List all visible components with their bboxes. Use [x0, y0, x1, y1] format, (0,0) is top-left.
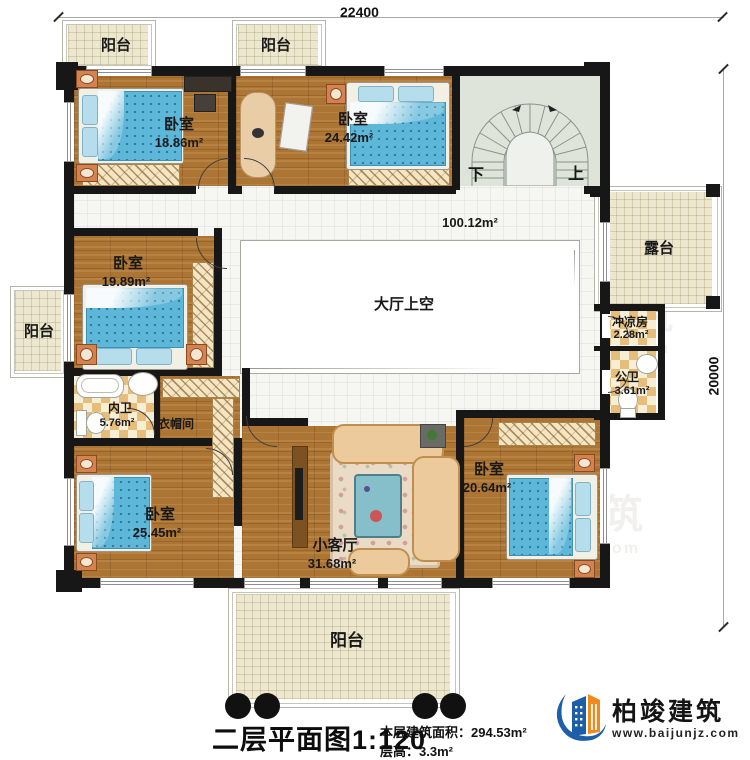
- window: [100, 578, 194, 588]
- nightstand: [76, 553, 97, 571]
- nightstand: [76, 455, 97, 473]
- floor-area-note: 本层建筑面积：294.53m²: [380, 722, 527, 741]
- wardrobe: [498, 422, 596, 446]
- window: [492, 578, 570, 588]
- dimension-line-right: [723, 70, 724, 628]
- dimension-height-label: 20000: [705, 357, 721, 396]
- balcony-label: 阳台: [261, 38, 291, 53]
- bedroom3-area: 19.89m²: [102, 275, 150, 288]
- nightstand: [574, 454, 595, 472]
- window: [384, 66, 444, 76]
- shower-room-area: 2.28m²: [614, 330, 649, 341]
- wall-segment: [64, 228, 198, 236]
- bedroom3-label: 卧室: [113, 256, 143, 271]
- window: [64, 294, 74, 362]
- nightstand: [76, 344, 97, 365]
- bedroom1-area: 18.86m²: [155, 136, 203, 149]
- bedroom5-label: 卧室: [474, 462, 504, 477]
- bedroom1-label: 卧室: [164, 117, 194, 132]
- landing-area-label: 100.12m²: [442, 216, 498, 229]
- pillow: [136, 348, 172, 365]
- window: [64, 478, 74, 546]
- brand-website: www.baijunjz.com: [612, 726, 740, 740]
- dimension-width-label: 22400: [340, 4, 379, 20]
- balcony-label: 阳台: [24, 324, 54, 339]
- bedroom5-area: 20.64m²: [463, 481, 511, 494]
- wall-segment: [658, 304, 665, 420]
- sink: [636, 354, 658, 374]
- wall-segment: [228, 186, 242, 194]
- pillow: [358, 86, 394, 102]
- brand-logo-icon: [552, 684, 608, 746]
- table-decor: [364, 486, 370, 492]
- wall-segment: [584, 186, 610, 194]
- bathtub-basin: [81, 378, 119, 393]
- living-room-label: 小客厅: [312, 538, 357, 553]
- pillow: [79, 481, 94, 511]
- planter: [420, 424, 446, 448]
- wall-segment: [706, 296, 720, 309]
- column: [412, 693, 438, 719]
- living-room-area: 31.68m²: [308, 557, 356, 570]
- bedroom4-area: 25.45m²: [133, 526, 181, 539]
- wall-segment: [456, 410, 608, 418]
- bedroom2-label: 卧室: [338, 112, 368, 127]
- table-flowers: [370, 510, 382, 522]
- nightstand: [186, 344, 207, 365]
- wardrobe: [162, 378, 240, 398]
- bathtub: [76, 374, 124, 398]
- dimension-line-top: [58, 17, 724, 18]
- nightstand: [76, 70, 98, 88]
- toilet-tank: [620, 408, 636, 418]
- nightstand: [76, 164, 98, 182]
- column: [440, 693, 466, 719]
- pillow: [575, 482, 591, 516]
- tv: [295, 468, 303, 520]
- balcony-label: 阳台: [101, 38, 131, 53]
- wall-segment: [274, 186, 456, 194]
- window: [64, 102, 74, 162]
- hall-void-label: 大厅上空: [374, 297, 434, 312]
- wall-segment: [706, 184, 720, 197]
- floor-height-note: 层高：3.3m²: [380, 741, 453, 760]
- pillow: [575, 518, 591, 552]
- brand-name: 柏竣建筑: [612, 692, 724, 728]
- wardrobe: [212, 398, 234, 498]
- window: [600, 468, 610, 544]
- nightstand: [326, 84, 346, 104]
- sink: [128, 372, 158, 396]
- column: [254, 693, 280, 719]
- plant: [427, 430, 437, 440]
- stool: [194, 94, 216, 112]
- balcony-door: [244, 578, 442, 588]
- stair-down-label: 下: [468, 168, 484, 184]
- balcony-label: 阳台: [330, 632, 364, 649]
- window: [240, 66, 306, 76]
- desk-chair: [252, 128, 264, 138]
- pillow: [79, 513, 94, 543]
- nightstand: [574, 560, 595, 578]
- wall-segment: [234, 446, 242, 526]
- stair-up-label: 上: [568, 167, 584, 183]
- closet-label: 衣帽间: [158, 418, 194, 430]
- shower-room-label: 冲凉房: [612, 316, 648, 328]
- pillow: [82, 127, 98, 157]
- terrace-label: 露台: [644, 241, 674, 256]
- ensuite-bath-label: 内卫: [108, 402, 132, 414]
- ensuite-bath-area: 5.76m²: [100, 418, 135, 429]
- terrace-door: [600, 222, 610, 282]
- bedroom2-area: 24.42m²: [325, 131, 373, 144]
- door-mullion: [300, 578, 310, 588]
- column: [225, 693, 251, 719]
- pillow: [82, 95, 98, 125]
- coffee-table: [354, 474, 402, 538]
- wall-segment: [64, 186, 196, 194]
- public-bath-area: 3.61m²: [615, 386, 650, 397]
- public-bath-label: 公卫: [615, 371, 639, 383]
- floor-plan-canvas: 柏竣建筑 www.baijunjz.com 柏竣建筑 www.baijunjz.…: [0, 0, 750, 760]
- pillow: [96, 348, 132, 365]
- wall-corner: [56, 62, 78, 90]
- bedroom4-label: 卧室: [145, 507, 175, 522]
- dresser: [184, 76, 232, 92]
- wall-corner: [56, 570, 82, 592]
- door-mullion: [378, 578, 388, 588]
- wall-segment: [452, 66, 460, 190]
- pillow: [398, 86, 434, 102]
- sofa: [412, 456, 460, 562]
